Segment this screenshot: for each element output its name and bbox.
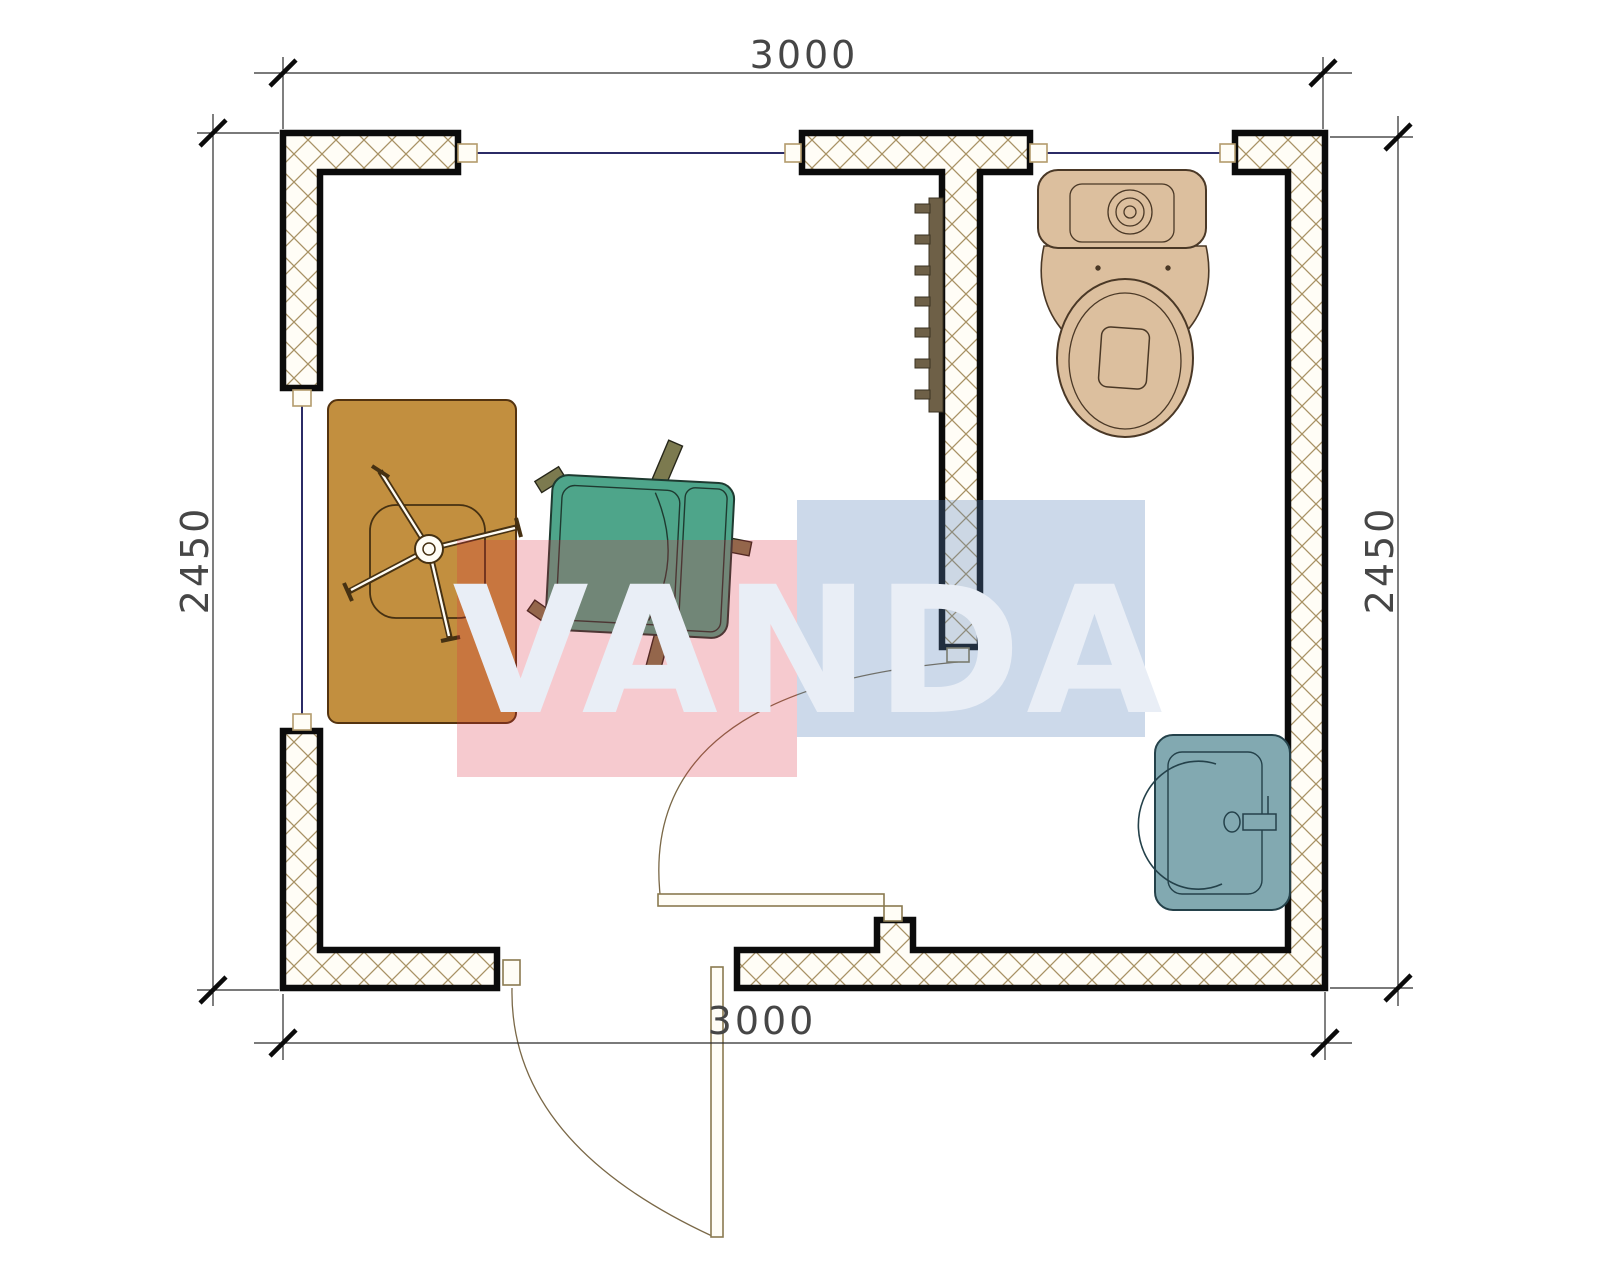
bathroom-door-arc bbox=[659, 662, 958, 894]
armchair bbox=[524, 433, 756, 679]
wall-bottom-left bbox=[283, 731, 497, 988]
sink bbox=[1138, 735, 1290, 910]
window-frame-box bbox=[1220, 144, 1235, 162]
entrance-door-arc bbox=[512, 988, 712, 1236]
toilet-seat-bolt bbox=[1166, 266, 1170, 270]
window-frame-box bbox=[293, 390, 311, 406]
radiator-fin bbox=[915, 235, 930, 244]
radiator bbox=[915, 198, 943, 412]
radiator-fin bbox=[915, 328, 930, 337]
radiator-fin bbox=[915, 359, 930, 368]
door-frame-box bbox=[503, 960, 520, 985]
floor-plan-drawing: 3000 3000 2450 2450 bbox=[0, 0, 1600, 1280]
dimension-height-right: 2450 bbox=[1358, 506, 1402, 615]
radiator-fin bbox=[915, 204, 930, 213]
door-frame-box bbox=[884, 906, 902, 921]
toilet-bowl bbox=[1057, 279, 1193, 437]
radiator-fin bbox=[915, 297, 930, 306]
window-frame-box bbox=[293, 714, 311, 730]
window-frame-box bbox=[458, 144, 477, 162]
armchair-leg bbox=[645, 630, 670, 674]
dimension-height-left: 2450 bbox=[173, 506, 217, 615]
radiator-fin bbox=[915, 266, 930, 275]
wall-top-left bbox=[283, 133, 458, 388]
toilet-seat-bolt bbox=[1096, 266, 1100, 270]
radiator-fin bbox=[915, 390, 930, 399]
sink-faucet bbox=[1243, 814, 1276, 830]
toilet bbox=[1038, 170, 1209, 437]
armchair-leg bbox=[652, 440, 682, 485]
door-frame-box bbox=[947, 648, 969, 662]
bathroom-door-leaf bbox=[658, 894, 884, 906]
window-frame-box bbox=[1030, 144, 1047, 162]
window-frame-box bbox=[785, 144, 801, 162]
dimension-width-top: 3000 bbox=[750, 33, 859, 77]
toilet-tank bbox=[1038, 170, 1206, 248]
dimension-width-bottom: 3000 bbox=[708, 999, 817, 1043]
armchair-body bbox=[545, 474, 735, 638]
